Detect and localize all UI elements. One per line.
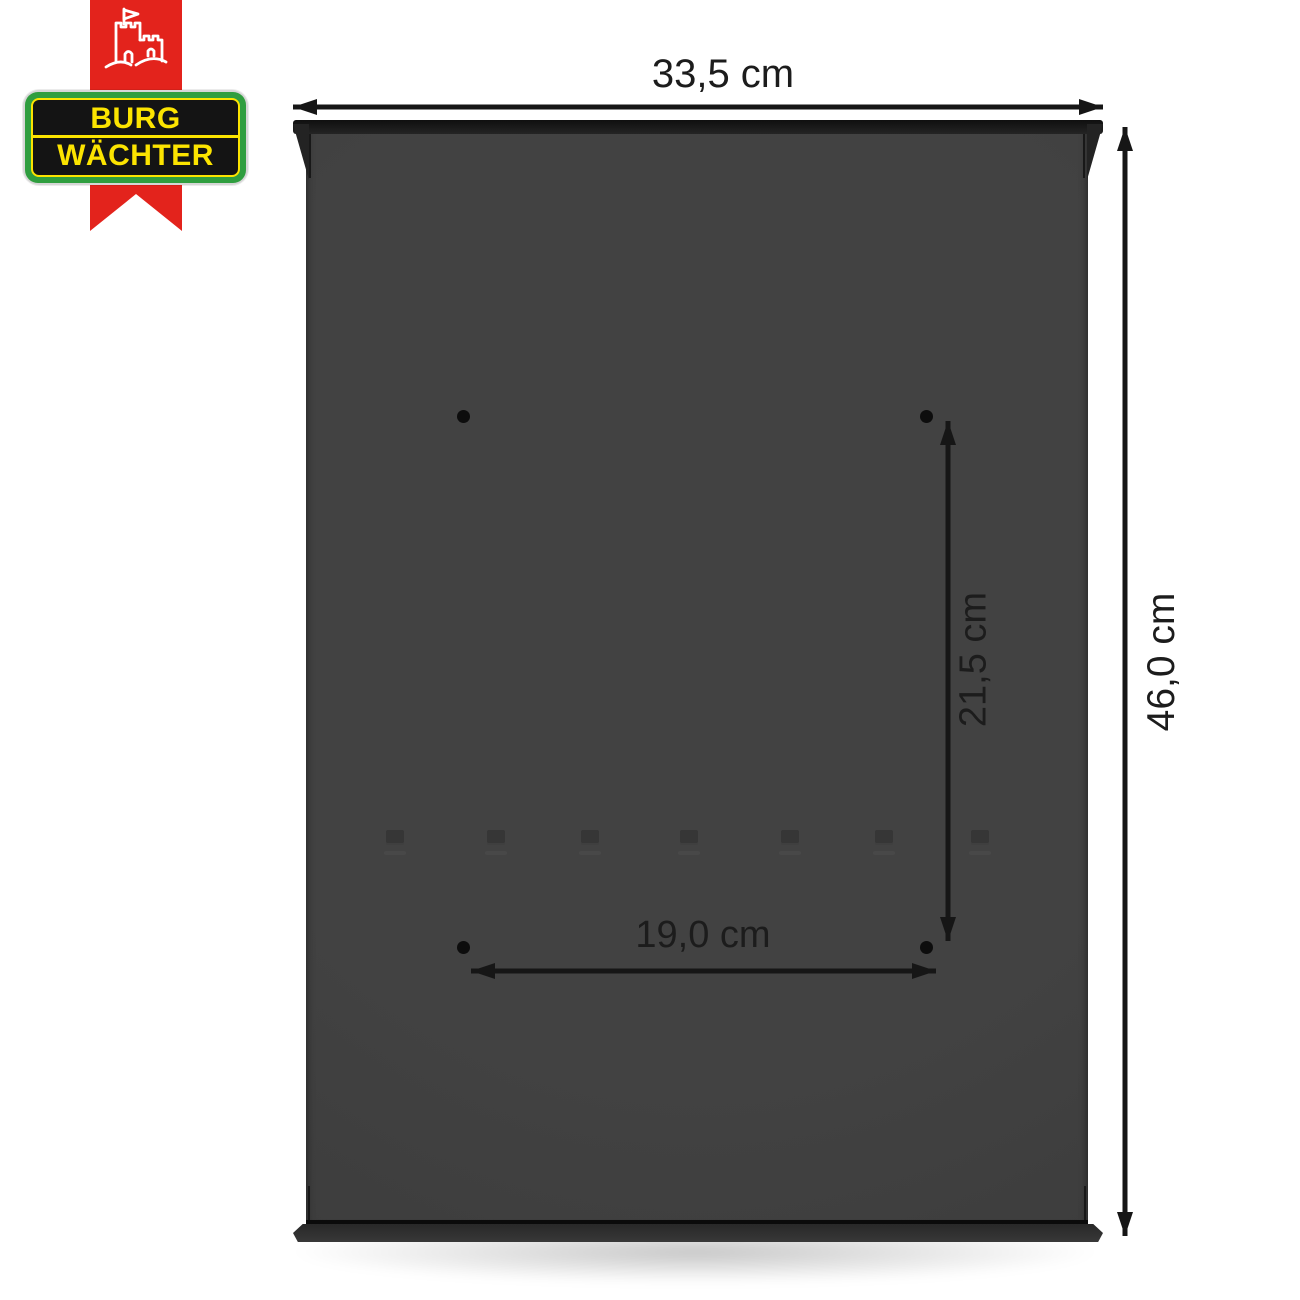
height-dimension-label: 46,0 cm [1140, 512, 1184, 812]
product-dimension-image: BURG WÄCHTER 33,5 cm 46, [0, 0, 1300, 1300]
width-dimension-label: 33,5 cm [573, 52, 873, 97]
hole-vertical-spacing-label: 21,5 cm [953, 510, 996, 810]
hole-horizontal-spacing-label: 19,0 cm [553, 914, 853, 957]
dimension-arrows [0, 0, 1300, 1300]
